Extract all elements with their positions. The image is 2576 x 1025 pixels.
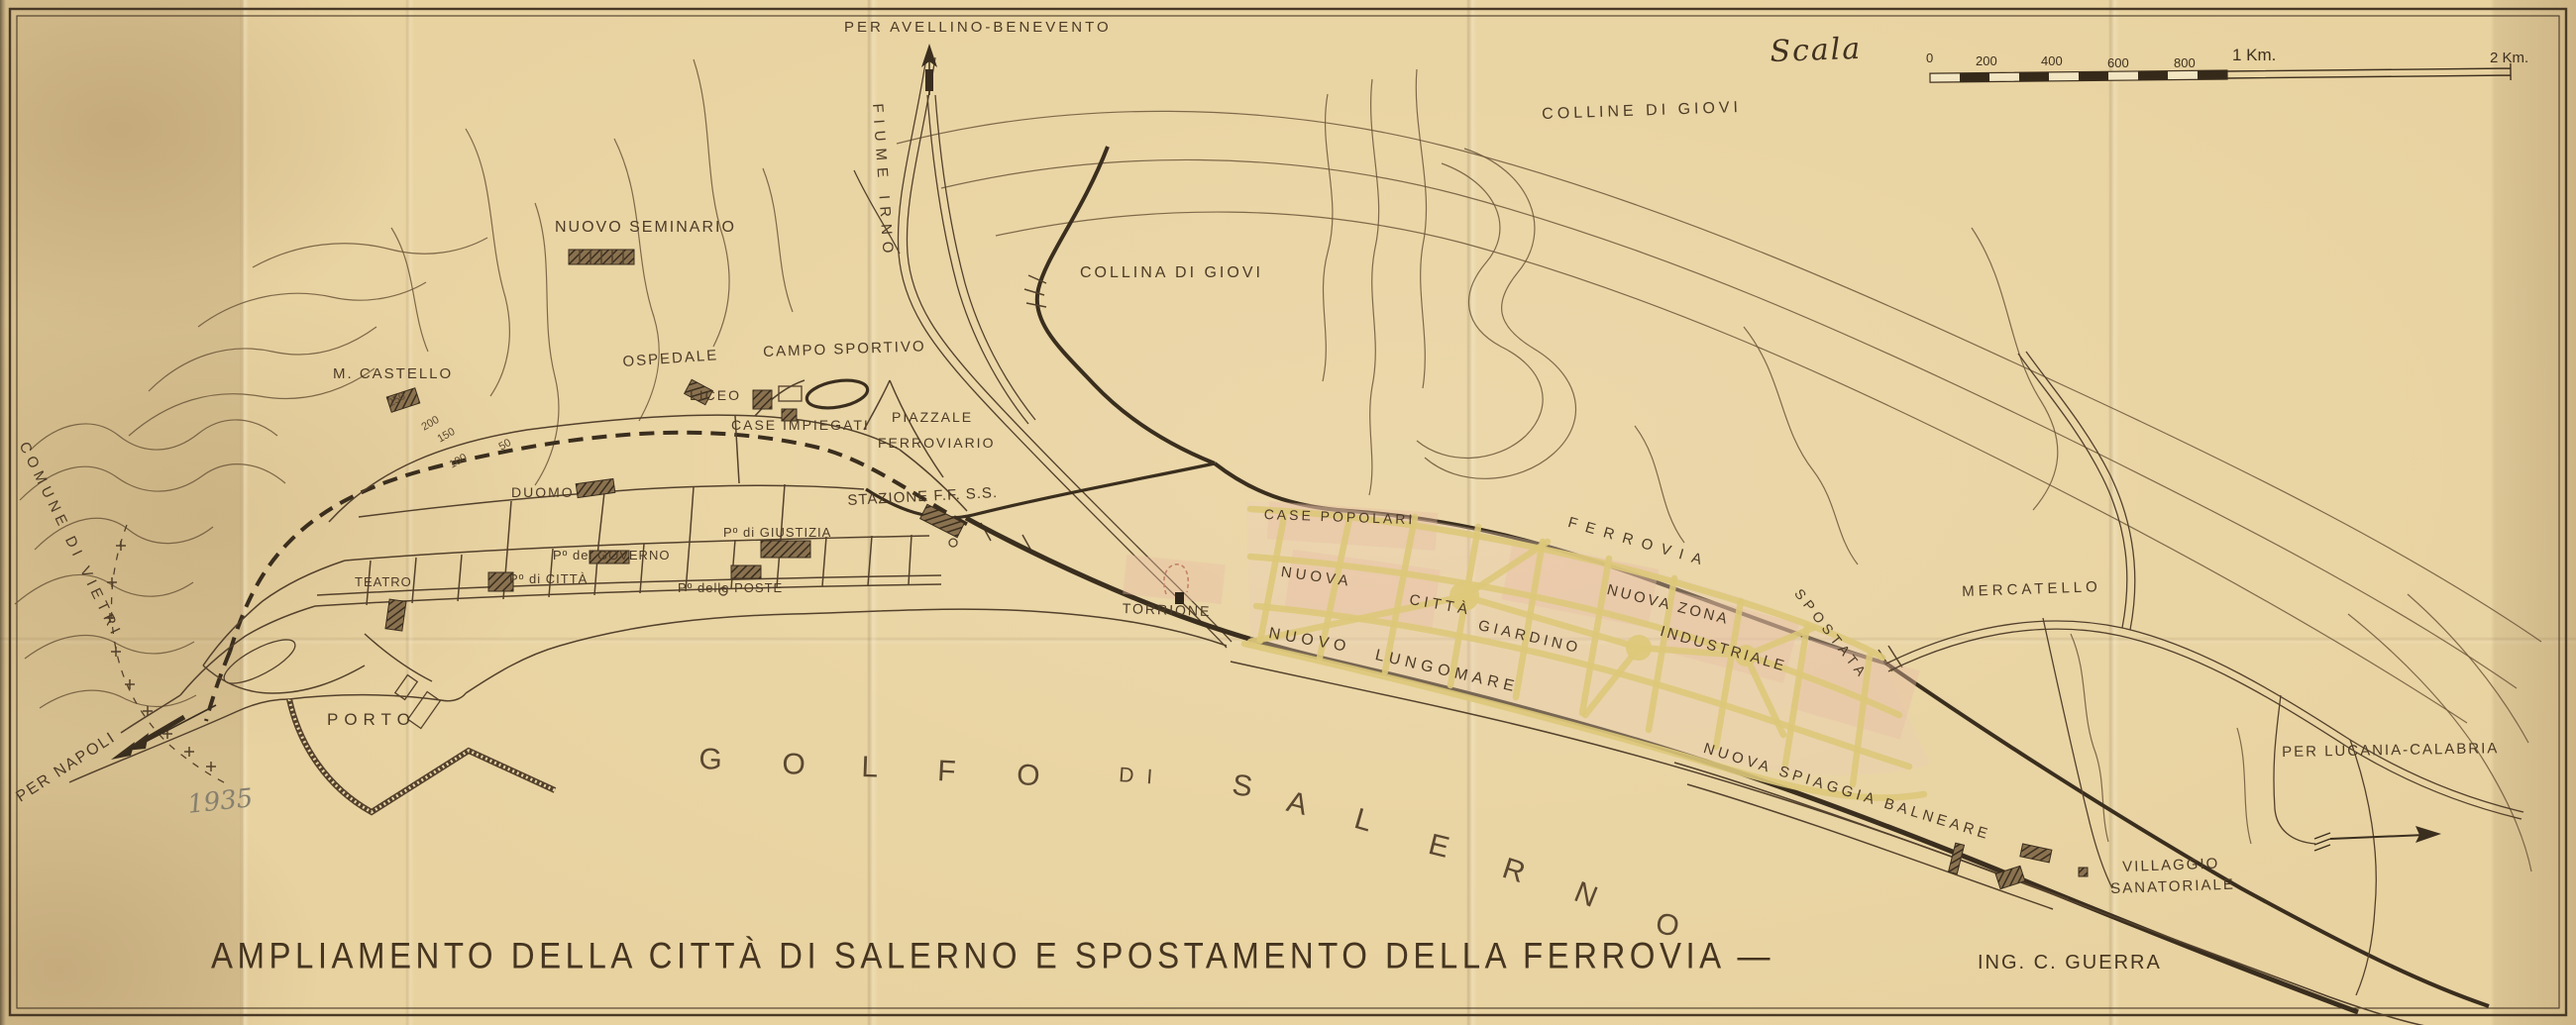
label-liceo: LICEO [690,388,741,402]
map-author: ING. C. GUERRA [1978,953,2162,973]
label-p-di-citta: Pº di CITTÀ [509,572,588,585]
sea-letter-o2: O [1016,761,1040,791]
old-city-streets [121,380,967,733]
road-avellino [927,95,1035,424]
label-p-di-giustizia: Pº di GIUSTIZIA [723,526,831,539]
roads-east [1886,352,2523,995]
sea-letter-d: D [1119,765,1135,786]
label-ferroviario: FERROVIARIO [878,436,995,450]
sea-letter-f: F [936,757,956,787]
beach-strip [1674,763,2069,909]
label-nuovo-seminario: NUOVO SEMINARIO [555,220,736,236]
label-per-lucania-calabria: PER LUCANIA-CALABRIA [2282,741,2499,760]
port [289,675,555,812]
label-duomo: DUOMO [511,485,575,499]
label-year: 1935 [186,785,255,818]
scale-tick-2km: 2 Km. [2490,51,2528,65]
new-city-grid [1123,501,1930,798]
label-teatro: TEATRO [355,575,412,588]
scale-tick-0: 0 [1926,51,1933,64]
label-p-delle-poste: Pº delle POSTE [678,581,783,594]
salerno-plan-map: ScalaPER AVELLINO-BENEVENTOFIUME IRNONUO… [0,0,2576,1025]
label-torrione: TORRIONE [1123,601,1212,618]
scale-tick-200: 200 [1976,54,1997,67]
label-porto: PORTO [327,711,416,728]
sea-letter-s: S [1231,770,1254,802]
label-piazzale: PIAZZALE [892,410,973,424]
scale-tick-800: 800 [2174,56,2196,69]
contour-lines [15,59,2541,871]
sea-letter-g: G [698,745,722,775]
label-sanatoriale: SANATORIALE [2110,877,2235,896]
label-collina-di-giovi: COLLINA DI GIOVI [1080,265,1263,281]
label-villaggio: VILLAGGIO [2122,857,2220,874]
label-case-impiegati: CASE IMPIEGATI [731,418,870,432]
label-scala: Scala [1770,35,1863,67]
map-title: AMPLIAMENTO DELLA CITTÀ DI SALERNO E SPO… [211,937,1774,974]
label-per-avellino-benevento: PER AVELLINO-BENEVENTO [844,20,1112,35]
label-p-del-governo: Pº del GOVERNO [553,549,670,562]
scale-tick-400: 400 [2041,54,2063,67]
scale-bar [1930,63,2511,86]
railway-north [1024,147,1215,463]
railway-old-branch [866,463,1215,553]
scale-tick-1km: 1 Km. [2232,47,2276,63]
sea-letter-l1: L [861,753,879,783]
direction-arrows [111,44,2441,851]
sea-letter-o1: O [782,750,805,780]
label-m-castello: M. CASTELLO [333,366,453,381]
scale-tick-600: 600 [2107,56,2129,69]
